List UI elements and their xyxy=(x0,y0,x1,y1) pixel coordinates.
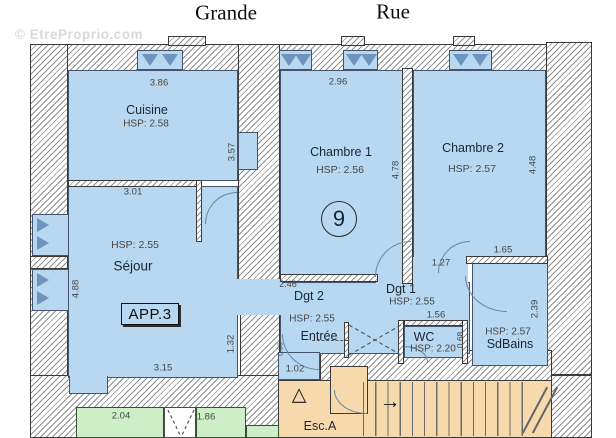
label-wc: WC xyxy=(414,330,435,344)
dim-chambre1-width: 2.96 xyxy=(329,77,348,88)
window-casement-icon xyxy=(346,54,362,66)
dim-entree-door: 0.96 xyxy=(278,342,285,356)
window-casement-icon xyxy=(142,54,158,66)
hsp-sejour: HSP: 2.55 xyxy=(111,239,159,251)
window-casement-icon xyxy=(453,54,469,66)
label-dgt2: Dgt 2 xyxy=(294,289,324,303)
hsp-dgt2: HSP: 2.55 xyxy=(289,314,335,325)
dim-chambre2-height: 4.48 xyxy=(528,156,539,175)
label-chambre1: Chambre 1 xyxy=(310,145,372,159)
window-casement-icon xyxy=(37,218,49,232)
window-chambre1-a xyxy=(279,50,312,70)
dim-dgt2-width: 2.46 xyxy=(279,279,297,289)
window-casement-icon xyxy=(37,273,49,287)
wall-wc-top xyxy=(404,320,466,326)
hsp-chambre2: HSP: 2.57 xyxy=(448,163,496,175)
label-entree: Entrée xyxy=(301,329,338,343)
dim-chambre1-height: 4.78 xyxy=(391,161,402,180)
dim-annex-right: 1.86 xyxy=(197,412,216,423)
dim-sdbains-width: 1.65 xyxy=(494,245,513,256)
dim-wc-width: 1.56 xyxy=(427,310,446,321)
wall-window-pier xyxy=(30,256,68,269)
floor-plan: © EtreProprio.com Grande Rue xyxy=(0,0,616,438)
dim-annex-left: 2.04 xyxy=(112,411,131,422)
label-cuisine: Cuisine xyxy=(126,103,168,117)
label-sejour: Séjour xyxy=(113,259,152,274)
hsp-dgt1: HSP: 2.55 xyxy=(389,297,435,308)
hsp-wc: HSP: 2.20 xyxy=(410,344,456,355)
annex-door-dashes xyxy=(165,408,197,438)
room-sejour-extension xyxy=(69,376,108,394)
annex-room-right-step xyxy=(246,425,279,438)
window-casement-icon xyxy=(295,54,311,66)
label-sdbains: SdBains xyxy=(487,337,534,351)
stair-start-triangle-icon: △ xyxy=(292,384,307,407)
dim-dgt1-wall: 1.27 xyxy=(432,258,451,269)
entree-closet-icon xyxy=(348,324,402,356)
annex-door-gap xyxy=(164,407,196,438)
wall-bump-3 xyxy=(453,36,475,46)
dim-sejour-top: 3.01 xyxy=(124,187,143,198)
dim-wc-right: 0.68 xyxy=(455,332,465,349)
wall-mid-lower xyxy=(240,313,280,380)
wall-right xyxy=(546,42,592,375)
dim-cuisine-width: 3.86 xyxy=(150,78,169,89)
window-chambre2 xyxy=(449,50,492,70)
window-casement-icon xyxy=(37,291,49,305)
hsp-cuisine: HSP: 2.58 xyxy=(123,119,169,130)
window-chambre1-b xyxy=(343,50,378,70)
dim-cuisine-depth: 3.57 xyxy=(227,143,238,162)
hsp-chambre1: HSP: 2.56 xyxy=(316,164,364,176)
passage-sejour-dgt2 xyxy=(236,279,282,315)
window-casement-icon xyxy=(37,236,49,250)
dim-sejour-height: 4.88 xyxy=(71,280,82,299)
window-sejour-a xyxy=(32,214,69,256)
window-casement-icon xyxy=(162,54,178,66)
dim-entree-bottom: 1.02 xyxy=(286,364,305,375)
window-casement-icon xyxy=(472,54,488,66)
street-label-rue: Rue xyxy=(376,0,410,25)
window-cuisine xyxy=(137,50,183,70)
dim-sejour-right: 1.32 xyxy=(226,335,237,354)
street-label-grande: Grande xyxy=(195,1,257,26)
hsp-sdbains: HSP: 2.57 xyxy=(485,327,531,338)
cuisine-niche xyxy=(238,132,258,170)
apartment-id-badge: APP.3 xyxy=(121,303,179,325)
wall-right-bottom xyxy=(550,375,592,438)
watermark: © EtreProprio.com xyxy=(15,27,143,42)
wall-bump-2 xyxy=(341,36,365,46)
window-sejour-b xyxy=(32,269,69,311)
unit-number-badge: 9 xyxy=(321,201,357,237)
dim-sdbains-height: 2.39 xyxy=(530,300,541,319)
wall-bump-1 xyxy=(168,36,206,46)
label-dgt1: Dgt 1 xyxy=(386,282,416,296)
dim-sejour-bottom: 3.15 xyxy=(154,363,173,374)
wall-sejour-stub xyxy=(196,180,202,242)
window-casement-icon xyxy=(361,54,377,66)
label-chambre2: Chambre 2 xyxy=(442,141,504,155)
wall-chambre2-sdbains xyxy=(466,256,548,264)
stair-direction-arrow-icon: → xyxy=(380,390,401,414)
label-escalier: Esc.A xyxy=(304,419,337,433)
